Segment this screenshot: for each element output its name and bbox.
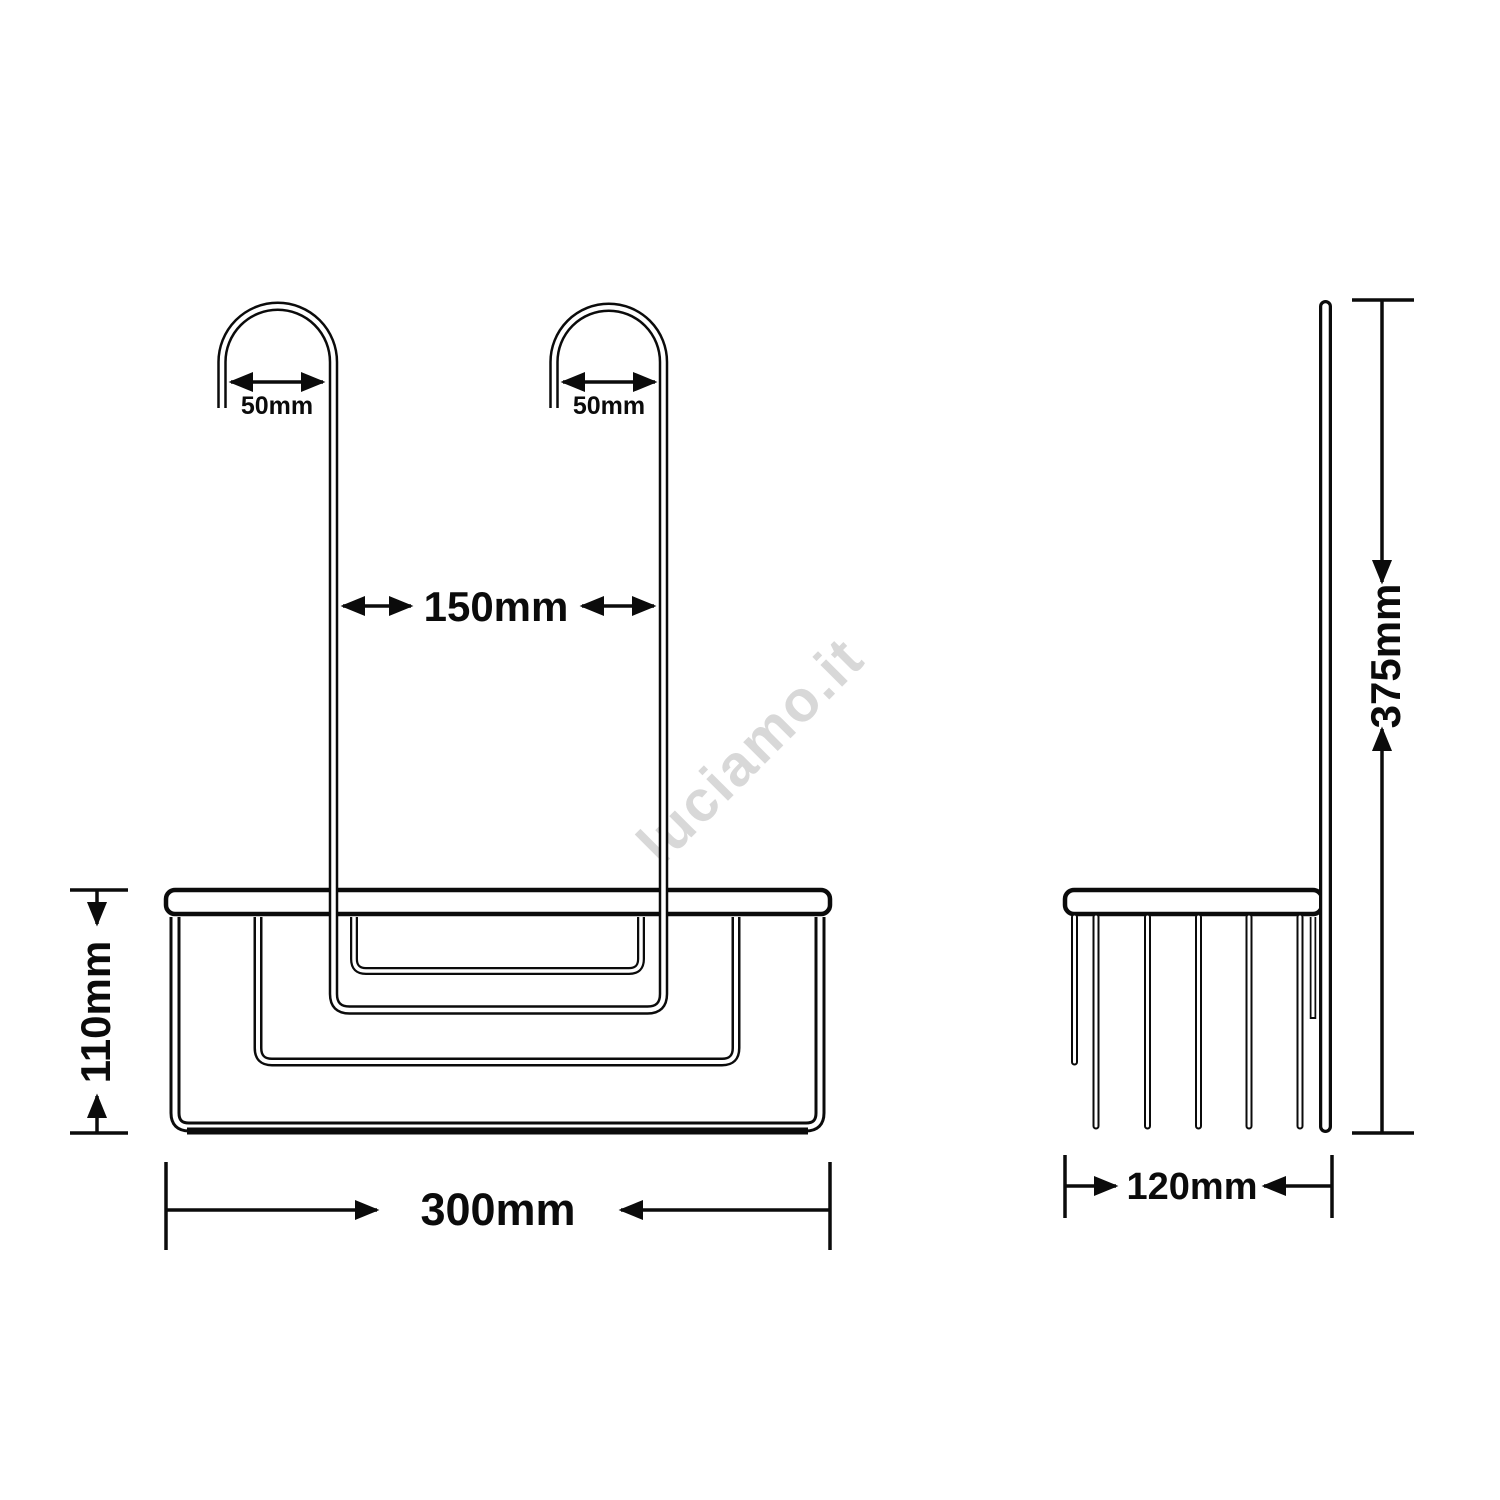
dim-hook-spacing-150mm: 150mm	[343, 583, 654, 630]
front-inner-wire	[354, 917, 641, 971]
dim-label-50mm-left: 50mm	[241, 392, 313, 420]
front-outer-wall	[175, 917, 820, 1131]
technical-drawing-canvas: luciamo.it 50mm	[0, 0, 1500, 1500]
dim-hook-left-50mm: 50mm	[231, 382, 323, 420]
dim-hook-right-50mm: 50mm	[563, 382, 655, 420]
dim-label-150mm: 150mm	[424, 583, 569, 630]
side-view: 120mm 375mm	[1065, 300, 1414, 1218]
front-rail	[166, 890, 830, 914]
dim-label-120mm: 120mm	[1127, 1166, 1258, 1208]
side-prongs	[1075, 917, 1314, 1126]
dim-label-375mm: 375mm	[1362, 584, 1409, 729]
side-rail	[1065, 890, 1322, 914]
dim-label-110mm: 110mm	[72, 941, 119, 1083]
shower-basket-dimension-diagram: luciamo.it 50mm	[0, 0, 1500, 1500]
dim-basket-depth-120mm: 120mm	[1065, 1155, 1332, 1218]
dim-basket-width-300mm: 300mm	[166, 1162, 830, 1250]
dim-label-50mm-right: 50mm	[573, 392, 645, 420]
dim-hanger-height-375mm: 375mm	[1352, 300, 1414, 1133]
dim-label-300mm: 300mm	[420, 1184, 575, 1235]
dim-basket-height-110mm: 110mm	[70, 890, 128, 1133]
